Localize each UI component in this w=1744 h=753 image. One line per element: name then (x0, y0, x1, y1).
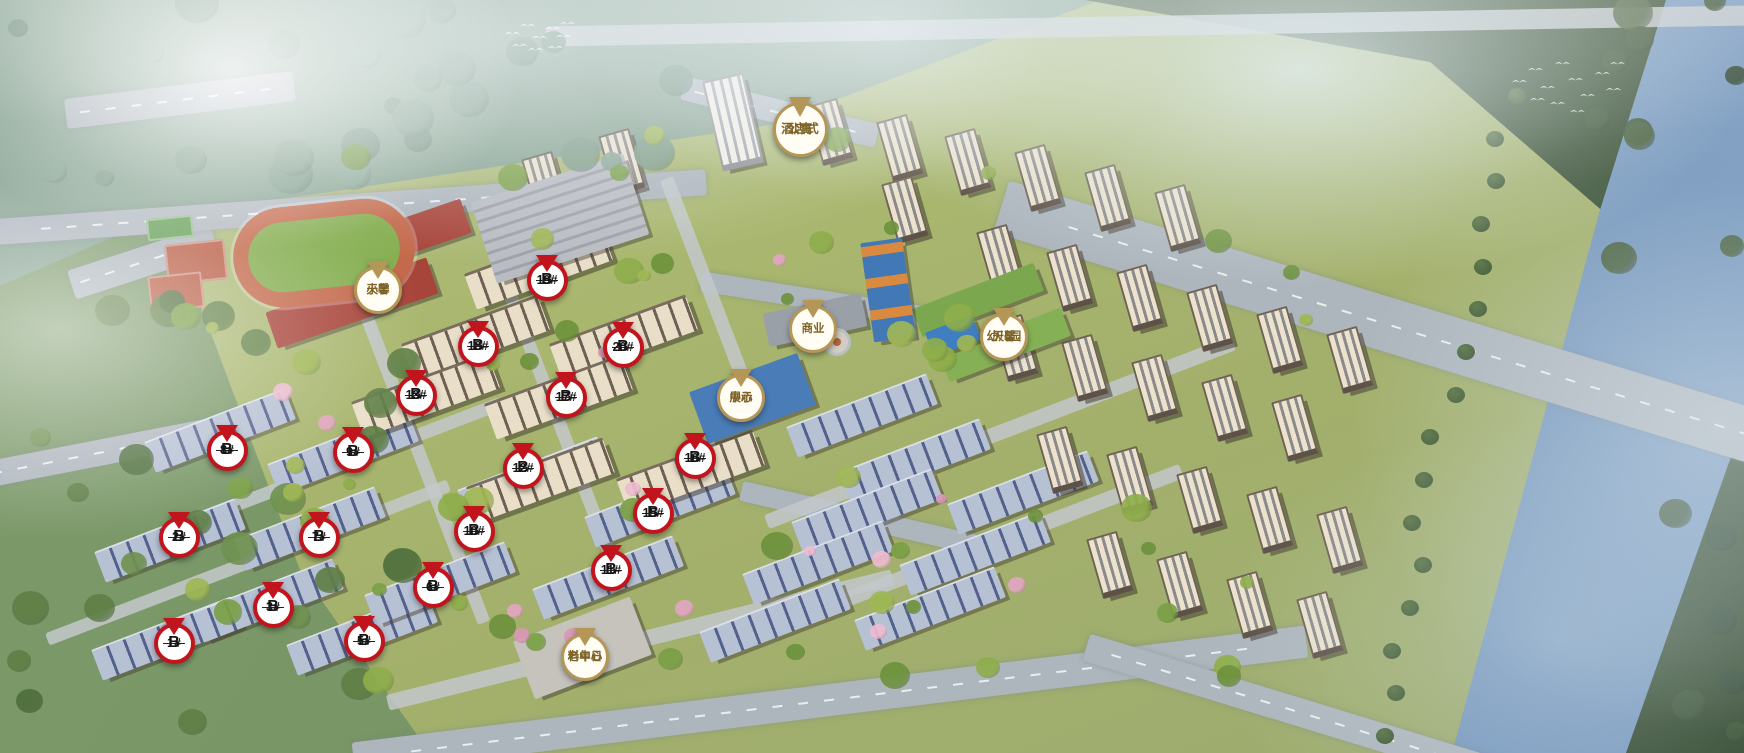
pin-tail (422, 562, 444, 579)
pin-tail (353, 616, 375, 633)
building-pin-number: 3# (266, 601, 280, 614)
pin-tail (730, 369, 752, 387)
facility-pin-label-line: 中心 (730, 392, 753, 404)
building-pin-number: 20# (613, 341, 634, 354)
building-pin-number: 16# (685, 452, 706, 465)
facility-pin-label-line: 公寓 (787, 123, 812, 136)
pin-tail (512, 443, 534, 460)
pin-tail (789, 97, 811, 117)
building-pin-number: 7# (312, 531, 326, 544)
building-pin-number: 8# (220, 444, 234, 457)
pin-tail (993, 308, 1015, 326)
pin-tail (642, 488, 664, 505)
building-pin-number: 12# (513, 462, 534, 475)
building-pin-number: 18# (468, 340, 489, 353)
pin-tail (405, 370, 427, 387)
pin-tail (367, 261, 389, 279)
building-pin-number: 5# (357, 635, 371, 648)
pin-tail (308, 512, 330, 529)
pin-tail (612, 322, 634, 339)
facility-pin-label-line: 幼儿园 (987, 331, 1022, 343)
pin-tail (262, 582, 284, 599)
pin-tail (555, 372, 577, 389)
pin-tail (463, 506, 485, 523)
facility-pin-label-line: 商业 (802, 323, 825, 335)
pin-tail (342, 427, 364, 444)
facility-pin-label-line: 料中心 (568, 651, 603, 663)
aerial-masterplan: 酒店式公寓 B 19# 天馨小学 商业 天馨幼儿园 B 18# B 20# 展示… (0, 0, 1744, 753)
building-pin-number: 1# (167, 637, 181, 650)
building-pin-number: 2# (172, 531, 186, 544)
building-pin-number: 13# (406, 389, 427, 402)
pin-tail (574, 628, 596, 646)
pin-tail (216, 425, 238, 442)
pin-tail (467, 321, 489, 338)
building-pin-number: 9# (346, 446, 360, 459)
pin-tail (163, 618, 185, 635)
pins-layer: 酒店式公寓 B 19# 天馨小学 商业 天馨幼儿园 B 18# B 20# 展示… (0, 0, 1744, 753)
building-pin-number: 11# (601, 564, 621, 577)
building-pin-number: 10# (464, 525, 485, 538)
building-pin-number: 17# (556, 391, 577, 404)
pin-tail (684, 433, 706, 450)
facility-pin-label-line: 小学 (367, 284, 390, 296)
building-pin-number: 15# (643, 507, 664, 520)
building-pin-number: 19# (537, 274, 558, 287)
pin-tail (168, 512, 190, 529)
pin-tail (802, 300, 824, 318)
pin-tail (600, 545, 622, 562)
pin-tail (536, 255, 558, 272)
building-pin-number: 6# (426, 581, 440, 594)
